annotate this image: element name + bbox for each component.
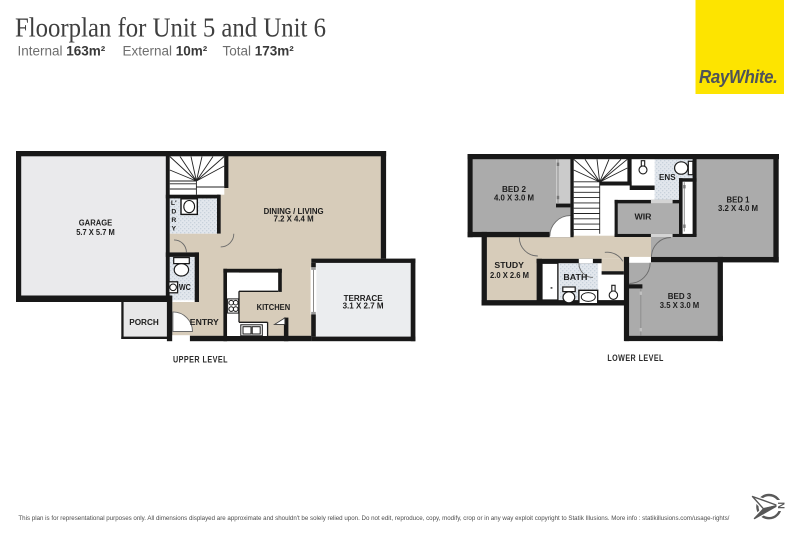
- svg-text:Floorplan for Unit 5 and Unit: Floorplan for Unit 5 and Unit 6: [15, 12, 326, 43]
- svg-text:WIR: WIR: [635, 211, 653, 221]
- svg-text:3.5 X 3.0 M: 3.5 X 3.0 M: [660, 300, 700, 310]
- svg-text:D: D: [171, 209, 176, 216]
- svg-text:R: R: [171, 217, 176, 224]
- svg-text:PORCH: PORCH: [129, 317, 159, 327]
- svg-text:4.0 X 3.0 M: 4.0 X 3.0 M: [494, 192, 534, 202]
- svg-text:ENTRY: ENTRY: [190, 317, 219, 327]
- svg-text:BATH: BATH: [563, 272, 587, 282]
- svg-text:Total 173m²: Total 173m²: [223, 44, 295, 59]
- svg-text:L': L': [171, 200, 177, 207]
- svg-text:UPPER LEVEL: UPPER LEVEL: [173, 355, 228, 366]
- svg-text:3.2 X 4.0 M: 3.2 X 4.0 M: [718, 203, 758, 213]
- svg-text:Internal 163m²: Internal 163m²: [18, 44, 106, 59]
- svg-text:7.2 X 4.4 M: 7.2 X 4.4 M: [274, 213, 314, 223]
- svg-text:KITCHEN: KITCHEN: [257, 302, 291, 312]
- svg-text:2.0 X 2.6 M: 2.0 X 2.6 M: [490, 270, 529, 280]
- svg-text:3.1 X 2.7 M: 3.1 X 2.7 M: [343, 301, 384, 311]
- svg-text:External 10m²: External 10m²: [123, 44, 208, 59]
- svg-text:LOWER LEVEL: LOWER LEVEL: [607, 353, 664, 364]
- svg-text:STUDY: STUDY: [494, 260, 524, 270]
- svg-text:ENS: ENS: [659, 172, 676, 182]
- svg-text:Y: Y: [172, 226, 177, 233]
- svg-text:5.7 X 5.7 M: 5.7 X 5.7 M: [76, 227, 115, 237]
- svg-text:RayWhite.: RayWhite.: [699, 66, 778, 87]
- svg-text:WC: WC: [179, 282, 191, 292]
- svg-text:This plan is for representatio: This plan is for representational purpos…: [18, 515, 729, 522]
- svg-text:N: N: [775, 502, 786, 509]
